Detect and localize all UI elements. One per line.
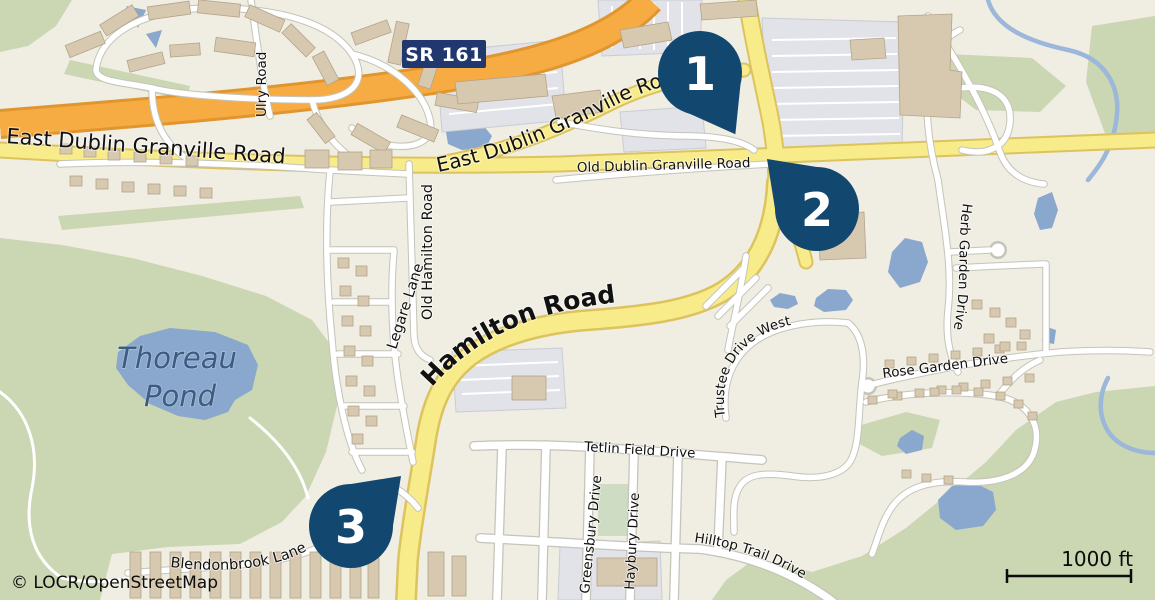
route-shield-sr161: SR 161: [402, 40, 486, 68]
marker-1-number: 1: [684, 47, 716, 101]
map-attribution: © LOCR/OpenStreetMap: [11, 573, 218, 593]
marker-3-number: 3: [335, 500, 367, 554]
label-thoreau-pond-line1: Thoreau: [117, 341, 237, 375]
map-canvas[interactable]: East Dublin Granville Road East Dublin G…: [0, 0, 1155, 600]
label-thoreau-pond-line2: Pond: [144, 379, 217, 413]
route-shield-label: SR 161: [405, 44, 483, 66]
label-old-hamilton-road: Old Hamilton Road: [420, 184, 436, 320]
scale-bar-label: 1000 ft: [1061, 547, 1133, 571]
marker-2-number: 2: [801, 183, 833, 237]
map-viewport: East Dublin Granville Road East Dublin G…: [0, 0, 1155, 600]
label-ulry-road: Ulry Road: [254, 52, 270, 117]
